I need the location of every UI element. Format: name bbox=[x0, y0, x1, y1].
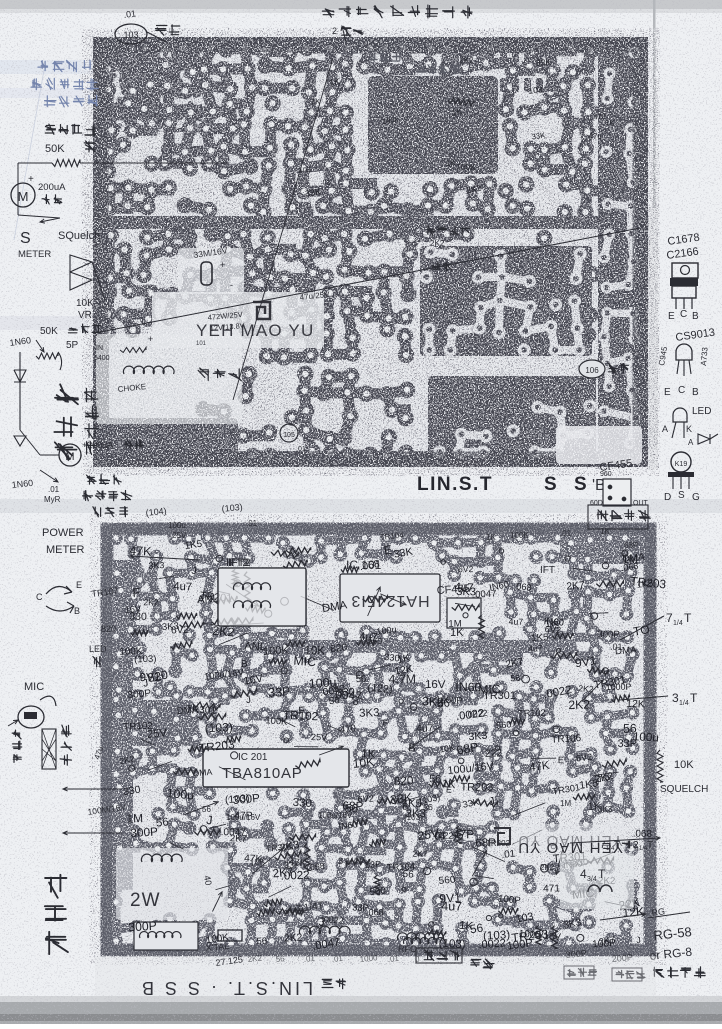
svg-text:HA1245I3: HA1245I3 bbox=[350, 592, 429, 609]
svg-text:16V: 16V bbox=[425, 679, 446, 691]
svg-text:3/4: 3/4 bbox=[587, 876, 597, 883]
svg-text:TR301: TR301 bbox=[483, 690, 516, 702]
svg-text:1M: 1M bbox=[622, 554, 638, 566]
svg-text:MyR: MyR bbox=[44, 495, 61, 504]
svg-text:4.7M: 4.7M bbox=[389, 672, 417, 686]
svg-text:J: J bbox=[191, 566, 197, 577]
svg-text:5P: 5P bbox=[66, 340, 79, 351]
svg-text:IFT2: IFT2 bbox=[226, 557, 249, 569]
svg-text:40: 40 bbox=[202, 875, 214, 887]
svg-text:A733: A733 bbox=[699, 346, 710, 366]
svg-text:300P: 300P bbox=[128, 919, 157, 935]
svg-text:1/4: 1/4 bbox=[679, 700, 689, 707]
svg-text:MIC: MIC bbox=[24, 681, 44, 693]
svg-text:470: 470 bbox=[339, 723, 356, 736]
svg-text:560: 560 bbox=[496, 719, 512, 730]
svg-text:.01: .01 bbox=[296, 446, 306, 453]
svg-text:F: F bbox=[298, 705, 306, 717]
svg-text:S: S bbox=[678, 490, 685, 501]
svg-text:.01: .01 bbox=[610, 642, 623, 652]
svg-text:+: + bbox=[220, 260, 225, 270]
svg-text:SQUELCH: SQUELCH bbox=[660, 784, 708, 795]
svg-text:-: - bbox=[230, 280, 233, 290]
svg-text:2K2: 2K2 bbox=[578, 683, 594, 694]
svg-text:B: B bbox=[692, 311, 699, 322]
svg-text:100u: 100u bbox=[166, 786, 195, 802]
svg-text:TR106: TR106 bbox=[551, 733, 582, 746]
svg-text:(103): (103) bbox=[404, 813, 423, 822]
svg-text:6V2: 6V2 bbox=[458, 564, 474, 574]
svg-text:IN: IN bbox=[96, 345, 103, 352]
svg-text:TR203: TR203 bbox=[460, 781, 493, 793]
svg-text:10K: 10K bbox=[76, 298, 94, 309]
svg-text:TR104: TR104 bbox=[387, 860, 416, 872]
svg-text:T: T bbox=[598, 867, 606, 881]
svg-text:25V: 25V bbox=[146, 727, 167, 741]
svg-text:56: 56 bbox=[155, 816, 169, 830]
svg-text:1K: 1K bbox=[605, 119, 614, 127]
svg-text:56: 56 bbox=[510, 673, 520, 683]
svg-text:3K3: 3K3 bbox=[456, 586, 476, 598]
svg-text:B: B bbox=[241, 659, 248, 670]
svg-text:B: B bbox=[692, 387, 699, 398]
svg-text:25V: 25V bbox=[172, 531, 187, 540]
svg-text:ANL: ANL bbox=[197, 593, 219, 606]
svg-text:1K5: 1K5 bbox=[636, 578, 653, 590]
svg-text:4: 4 bbox=[580, 867, 587, 881]
svg-text:J: J bbox=[206, 813, 213, 827]
svg-text:3K3: 3K3 bbox=[148, 560, 164, 571]
svg-text:6V2: 6V2 bbox=[171, 625, 190, 637]
svg-text:E: E bbox=[558, 755, 565, 766]
svg-text:POWER: POWER bbox=[42, 527, 84, 539]
svg-text:LED: LED bbox=[692, 406, 711, 417]
svg-text:ANL: ANL bbox=[244, 640, 266, 653]
svg-text:960: 960 bbox=[600, 471, 612, 478]
svg-text:471: 471 bbox=[543, 883, 560, 894]
svg-text:1K: 1K bbox=[329, 76, 341, 88]
svg-text:200uA: 200uA bbox=[38, 182, 66, 193]
svg-text:330: 330 bbox=[129, 611, 147, 624]
svg-text:RFC: RFC bbox=[398, 944, 417, 954]
svg-text:C: C bbox=[678, 385, 685, 396]
svg-text:IFT: IFT bbox=[540, 565, 555, 576]
svg-text:M: M bbox=[65, 451, 74, 463]
svg-text:1M: 1M bbox=[126, 811, 143, 826]
svg-text:2: 2 bbox=[332, 26, 337, 36]
svg-text:(122): (122) bbox=[435, 830, 458, 842]
svg-text:300P: 300P bbox=[130, 824, 158, 840]
svg-text:3K3: 3K3 bbox=[359, 707, 380, 720]
svg-text:103: 103 bbox=[123, 30, 138, 40]
svg-text:4u7: 4u7 bbox=[508, 617, 523, 627]
svg-text:.01: .01 bbox=[246, 519, 258, 528]
svg-text:50K: 50K bbox=[45, 143, 65, 155]
svg-text:S S: S S bbox=[544, 474, 593, 495]
svg-text:56: 56 bbox=[437, 697, 451, 710]
svg-text:(103): (103) bbox=[225, 792, 250, 806]
svg-text:M: M bbox=[18, 189, 29, 204]
svg-text:560: 560 bbox=[438, 875, 456, 887]
svg-text:.01: .01 bbox=[48, 485, 60, 494]
svg-text:LED: LED bbox=[89, 644, 107, 654]
svg-text:106: 106 bbox=[585, 366, 599, 375]
svg-text:METER: METER bbox=[18, 249, 51, 260]
svg-text:2K2: 2K2 bbox=[430, 239, 445, 248]
svg-text:TR102: TR102 bbox=[518, 708, 545, 719]
svg-text:100u: 100u bbox=[308, 675, 336, 691]
svg-text:2K7: 2K7 bbox=[566, 580, 585, 592]
svg-text:A: A bbox=[662, 424, 668, 434]
svg-text:60D: 60D bbox=[590, 500, 603, 507]
svg-text:(103): (103) bbox=[483, 928, 511, 943]
svg-text:47u: 47u bbox=[588, 132, 602, 142]
svg-text:2K2: 2K2 bbox=[568, 697, 590, 712]
svg-text:1M: 1M bbox=[560, 799, 571, 808]
svg-text:K: K bbox=[686, 424, 692, 434]
svg-text:100u/16V: 100u/16V bbox=[226, 813, 261, 822]
svg-text:100K: 100K bbox=[263, 645, 290, 658]
svg-text:A: A bbox=[688, 438, 694, 447]
svg-text:6V2: 6V2 bbox=[575, 752, 592, 764]
svg-text:100u: 100u bbox=[168, 521, 186, 530]
svg-text:TR202: TR202 bbox=[486, 839, 511, 848]
svg-text:100P: 100P bbox=[498, 893, 522, 906]
svg-text:5400: 5400 bbox=[94, 355, 110, 362]
svg-text:T: T bbox=[614, 840, 620, 851]
svg-text:IC 201: IC 201 bbox=[238, 752, 268, 763]
svg-text:100K: 100K bbox=[456, 161, 476, 172]
svg-text:LIN.S.T. · S S B: LIN.S.T. · S S B bbox=[139, 978, 313, 998]
svg-text:10K: 10K bbox=[352, 755, 375, 771]
svg-text:C: C bbox=[680, 309, 687, 320]
svg-text:2W: 2W bbox=[130, 890, 161, 911]
svg-text:222: 222 bbox=[485, 747, 503, 760]
svg-text:E: E bbox=[76, 580, 82, 590]
svg-text:E: E bbox=[664, 387, 671, 398]
svg-text:.01: .01 bbox=[320, 177, 331, 187]
svg-text:+: + bbox=[28, 174, 34, 185]
svg-text:33P: 33P bbox=[268, 685, 291, 700]
svg-text:.01: .01 bbox=[560, 529, 572, 538]
svg-text:56: 56 bbox=[256, 935, 267, 946]
svg-text:3 1/4T: 3 1/4T bbox=[338, 856, 364, 866]
svg-text:6V2: 6V2 bbox=[544, 624, 561, 635]
svg-text:1K: 1K bbox=[445, 158, 456, 168]
svg-text:S: S bbox=[20, 230, 31, 247]
svg-text:1M: 1M bbox=[448, 619, 461, 630]
svg-text:TBA810AP: TBA810AP bbox=[222, 765, 303, 782]
svg-text:100u/16V: 100u/16V bbox=[318, 811, 353, 820]
svg-text:T: T bbox=[690, 691, 698, 705]
svg-text:1K: 1K bbox=[451, 106, 464, 118]
svg-text:4u7: 4u7 bbox=[528, 643, 543, 654]
svg-text:56: 56 bbox=[623, 721, 637, 735]
svg-text:560: 560 bbox=[369, 885, 387, 898]
svg-text:K19: K19 bbox=[675, 461, 688, 468]
svg-text:2K2: 2K2 bbox=[284, 933, 303, 945]
svg-text:12K: 12K bbox=[626, 698, 645, 711]
svg-text:470: 470 bbox=[593, 112, 606, 121]
svg-text:1K: 1K bbox=[600, 527, 610, 536]
svg-text:56: 56 bbox=[202, 805, 211, 814]
svg-text:68P: 68P bbox=[624, 541, 638, 550]
svg-text:2K7: 2K7 bbox=[412, 849, 428, 859]
svg-text:103: 103 bbox=[528, 84, 544, 95]
svg-text:.068: .068 bbox=[513, 581, 532, 593]
svg-text:+200uA: +200uA bbox=[82, 440, 113, 450]
svg-text:820: 820 bbox=[101, 624, 116, 634]
svg-text:100K: 100K bbox=[510, 531, 529, 540]
svg-text:2K2: 2K2 bbox=[143, 597, 159, 607]
svg-text:T: T bbox=[684, 611, 692, 625]
svg-text:LIN.S.T: LIN.S.T bbox=[417, 474, 493, 495]
svg-text:C: C bbox=[36, 592, 43, 602]
svg-text:300P: 300P bbox=[597, 629, 619, 640]
svg-text:VR: VR bbox=[78, 310, 92, 321]
svg-text:330: 330 bbox=[292, 797, 312, 810]
svg-text:1/4: 1/4 bbox=[673, 620, 683, 627]
svg-text:56: 56 bbox=[356, 674, 367, 685]
svg-text:F: F bbox=[132, 585, 141, 600]
svg-text:4u7: 4u7 bbox=[441, 899, 462, 913]
svg-text:33K: 33K bbox=[536, 57, 552, 68]
svg-text:OUT: OUT bbox=[633, 500, 649, 507]
svg-text:105: 105 bbox=[283, 432, 295, 439]
svg-text:300P: 300P bbox=[127, 688, 152, 701]
svg-text:MIC: MIC bbox=[293, 654, 317, 669]
svg-text:.01: .01 bbox=[123, 8, 137, 20]
svg-text:25V: 25V bbox=[311, 732, 328, 742]
svg-text:.01: .01 bbox=[501, 848, 517, 861]
svg-text:1K5: 1K5 bbox=[579, 777, 599, 791]
svg-text:J: J bbox=[636, 935, 641, 945]
svg-text:(103): (103) bbox=[134, 654, 157, 666]
svg-text:(103): (103) bbox=[204, 720, 233, 735]
svg-text:820: 820 bbox=[330, 642, 348, 655]
svg-text:.0022: .0022 bbox=[321, 914, 344, 926]
svg-text:T: T bbox=[647, 840, 653, 851]
svg-text:B: B bbox=[74, 606, 80, 616]
svg-text:7: 7 bbox=[666, 611, 673, 625]
svg-text:3: 3 bbox=[672, 691, 679, 705]
svg-text:33P: 33P bbox=[352, 903, 369, 913]
svg-text:DMA: DMA bbox=[193, 767, 213, 779]
svg-text:33P: 33P bbox=[284, 860, 300, 870]
svg-text:50K: 50K bbox=[40, 326, 58, 337]
svg-text:G: G bbox=[692, 492, 700, 503]
svg-text:1K: 1K bbox=[459, 920, 474, 933]
svg-text:6V2: 6V2 bbox=[357, 793, 374, 804]
svg-text:3K3: 3K3 bbox=[598, 805, 613, 814]
svg-text:E: E bbox=[668, 311, 675, 322]
svg-text:101: 101 bbox=[196, 341, 207, 347]
svg-text:SQuelch: SQuelch bbox=[58, 230, 100, 242]
svg-text:4u7: 4u7 bbox=[173, 581, 192, 594]
svg-text:100K: 100K bbox=[265, 714, 288, 727]
svg-text:820: 820 bbox=[393, 773, 414, 788]
svg-text:METER: METER bbox=[46, 544, 85, 556]
svg-text:2K2: 2K2 bbox=[459, 56, 474, 65]
svg-text:1K: 1K bbox=[486, 533, 496, 542]
svg-text:+: + bbox=[148, 334, 153, 344]
svg-text:10K: 10K bbox=[674, 759, 694, 771]
svg-text:D: D bbox=[664, 492, 671, 503]
